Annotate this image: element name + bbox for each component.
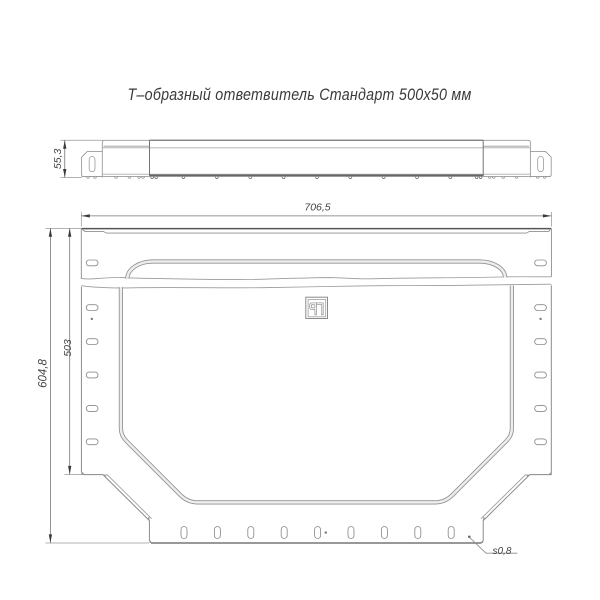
svg-text:706,5: 706,5 <box>304 202 330 214</box>
svg-text:Т–образный ответвитель Стандар: Т–образный ответвитель Стандарт 500х50 м… <box>127 86 471 104</box>
svg-text:55,3: 55,3 <box>52 149 64 170</box>
svg-text:604,8: 604,8 <box>38 359 50 388</box>
svg-text:503: 503 <box>62 339 74 357</box>
svg-text:s0,8: s0,8 <box>493 546 512 557</box>
